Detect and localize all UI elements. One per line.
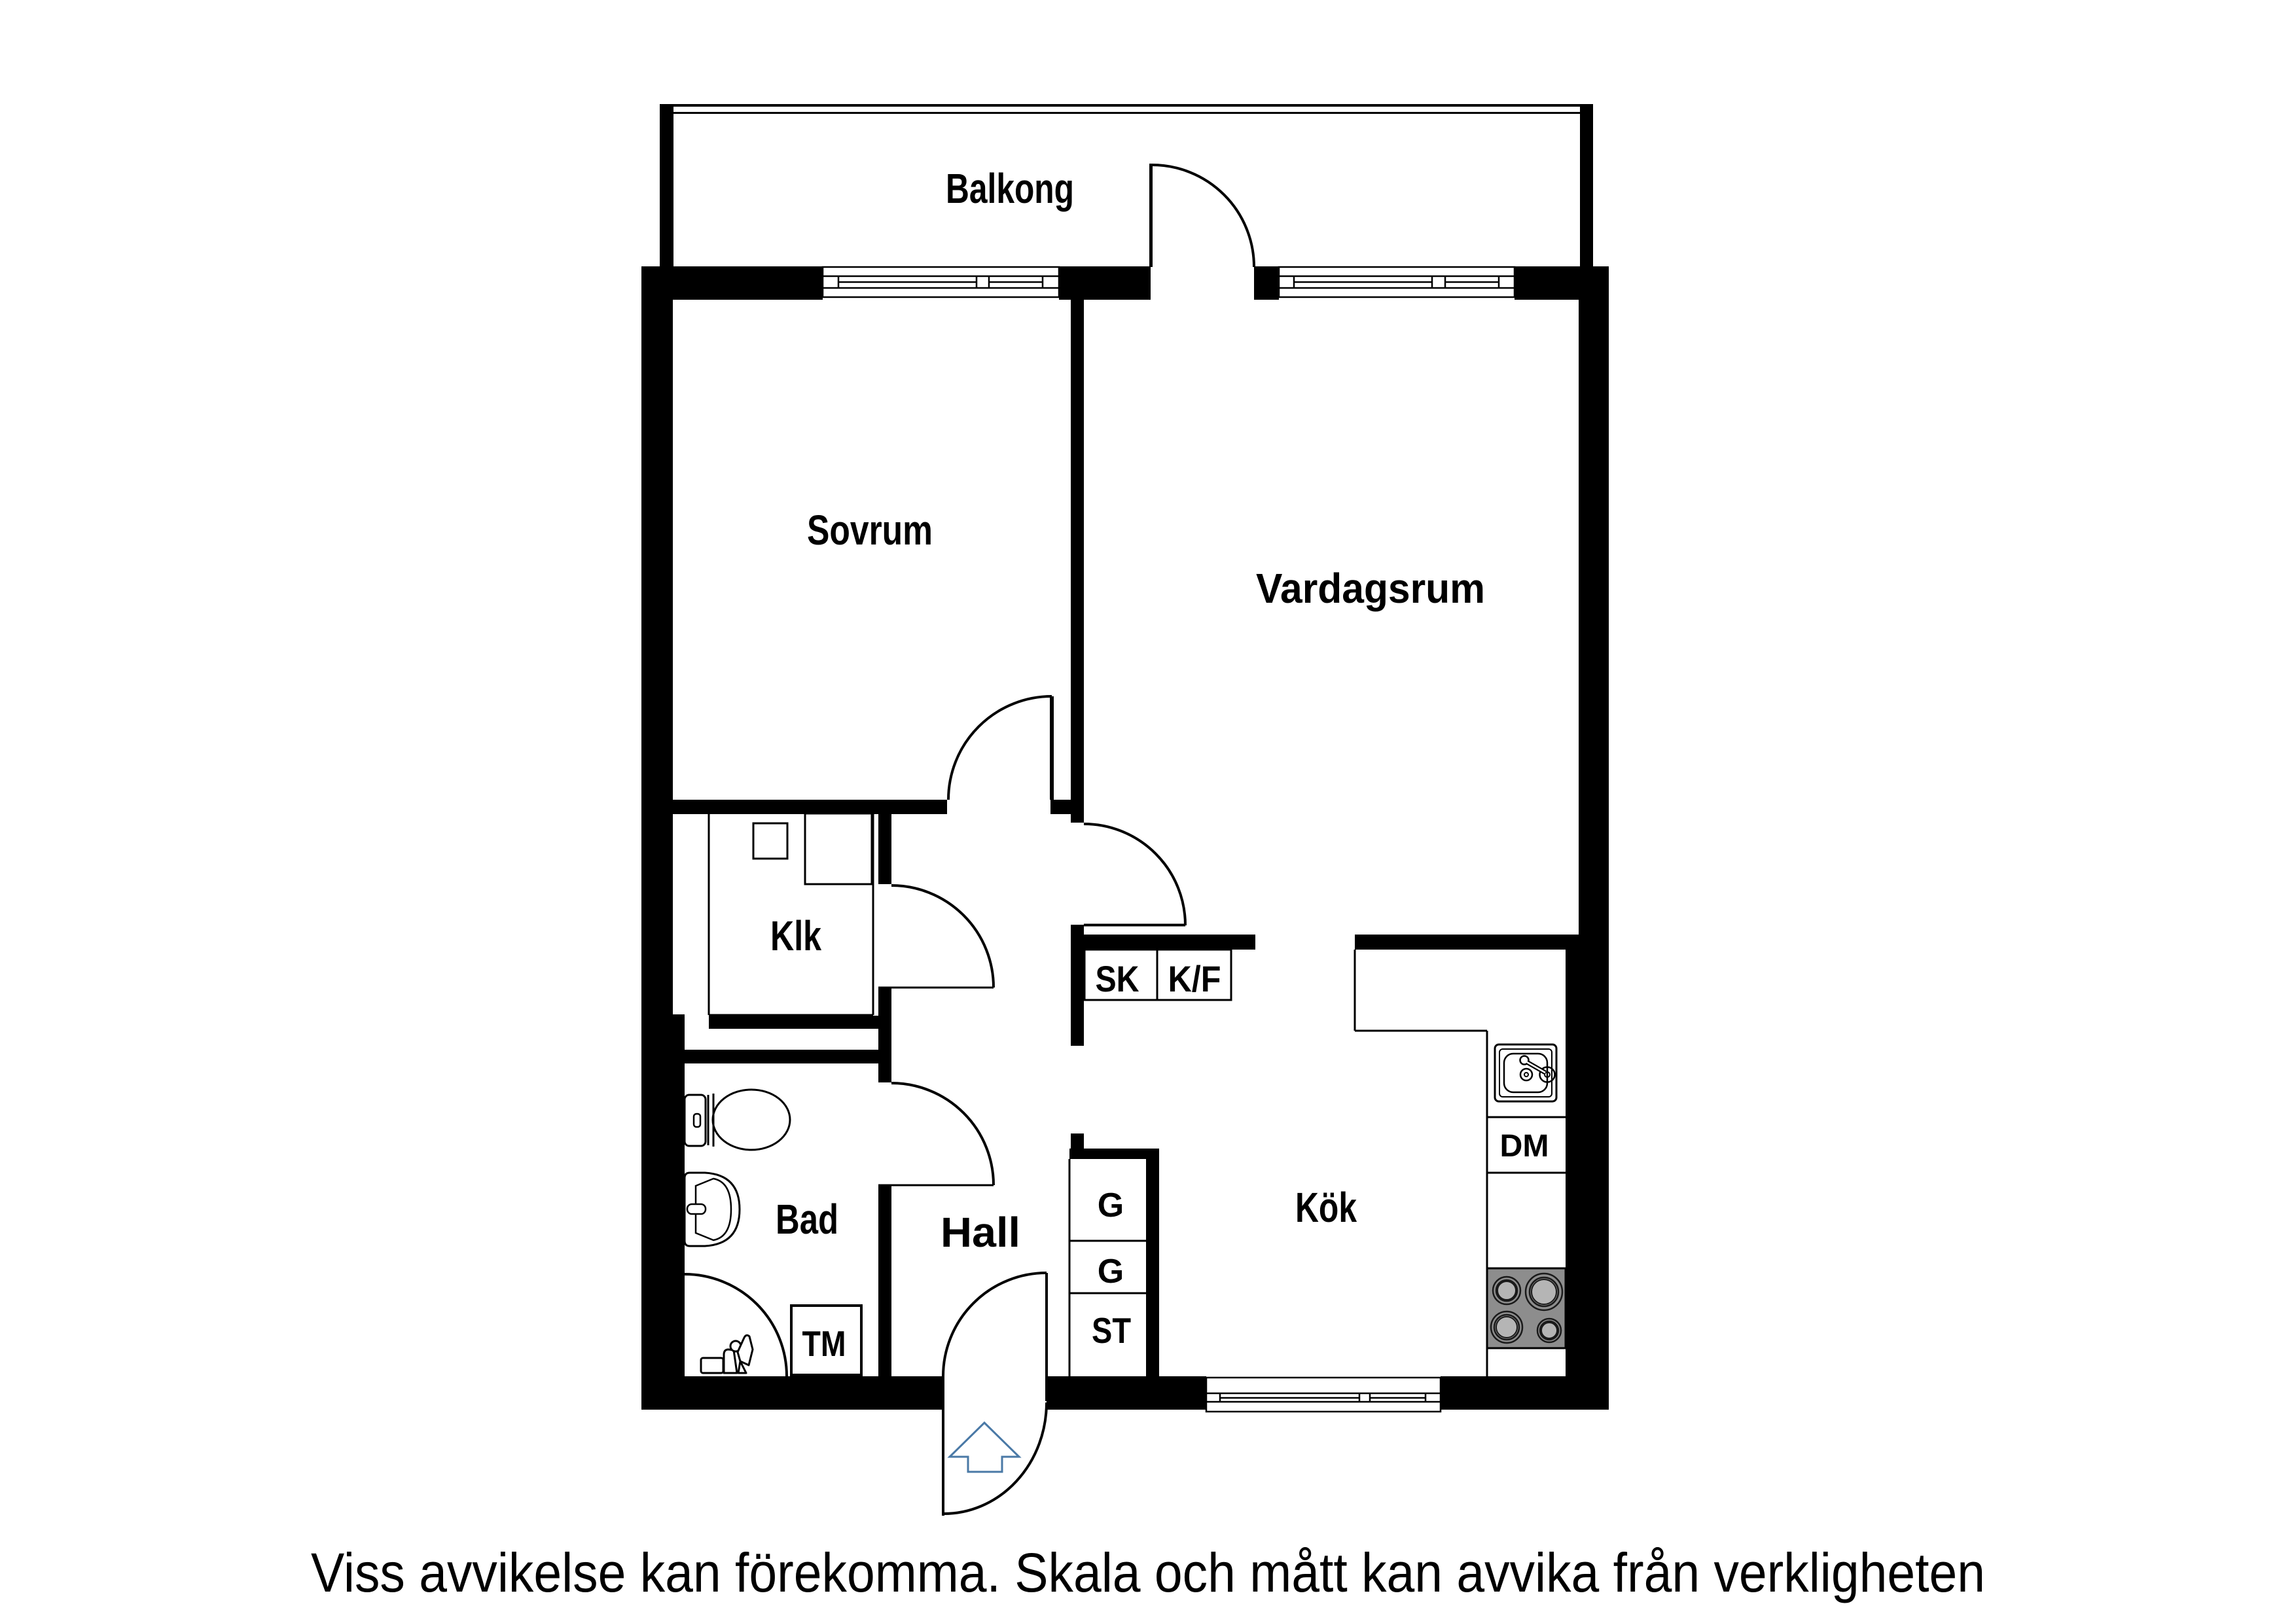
- svg-text:G: G: [1098, 1253, 1124, 1291]
- svg-text:G: G: [1098, 1186, 1124, 1224]
- svg-text:Sovrum: Sovrum: [807, 507, 933, 554]
- svg-text:Klk: Klk: [770, 912, 821, 959]
- svg-text:Bad: Bad: [776, 1196, 838, 1243]
- svg-text:Viss avvikelse kan förekomma.: Viss avvikelse kan förekomma. Skala och …: [311, 1542, 1985, 1603]
- svg-text:TM: TM: [802, 1323, 846, 1364]
- svg-text:Kök: Kök: [1295, 1184, 1357, 1231]
- svg-text:Hall: Hall: [941, 1209, 1020, 1256]
- svg-text:ST: ST: [1092, 1310, 1131, 1351]
- svg-text:DM: DM: [1500, 1129, 1549, 1164]
- svg-text:Vardagsrum: Vardagsrum: [1256, 565, 1485, 612]
- svg-text:SK: SK: [1096, 958, 1139, 999]
- svg-text:Balkong: Balkong: [946, 165, 1074, 212]
- svg-text:K/F: K/F: [1168, 958, 1221, 999]
